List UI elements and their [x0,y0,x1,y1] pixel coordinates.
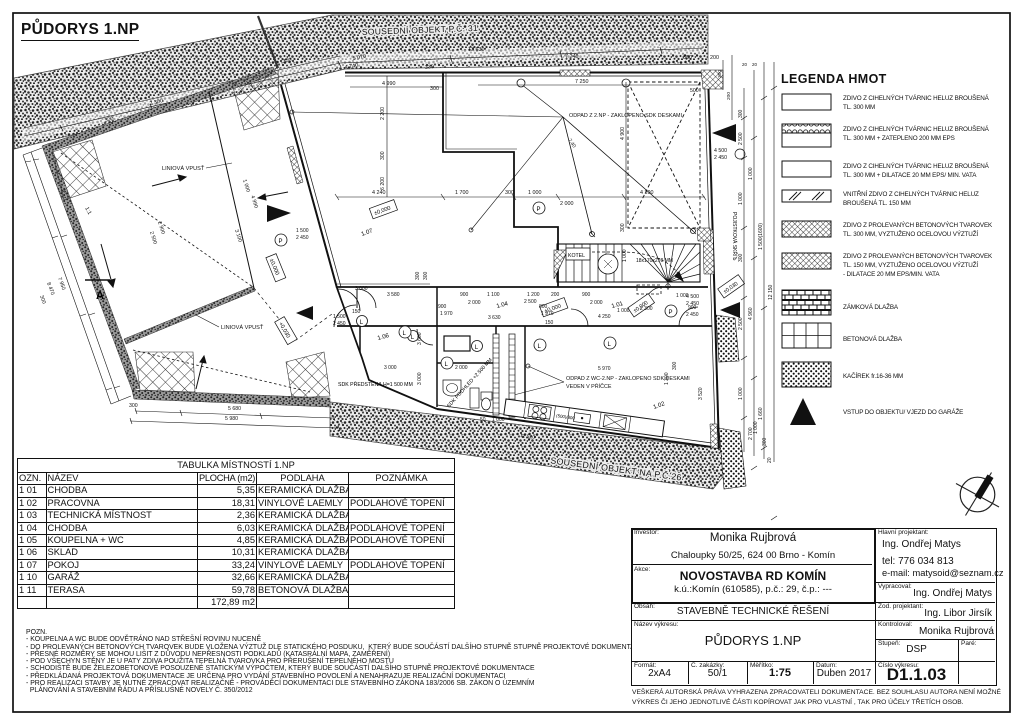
svg-text:SDK PŘEDSTĚNA H=1 500 MM: SDK PŘEDSTĚNA H=1 500 MM [338,380,413,388]
svg-text:4 240: 4 240 [372,190,386,196]
svg-text:ODPAD Z WC-2.NP - ZAKLOPENO SD: ODPAD Z WC-2.NP - ZAKLOPENO SDK DESKAMI [566,376,690,382]
svg-text:330: 330 [425,64,435,71]
svg-text:TL. 300 MM: TL. 300 MM [843,104,875,111]
svg-text:ZDIVO Z PROLEVANÝCH BETONOVÝCH: ZDIVO Z PROLEVANÝCH BETONOVÝCH TVAROVEK [843,220,993,229]
svg-text:1 300: 1 300 [664,372,670,385]
svg-text:200: 200 [551,292,560,298]
svg-text:TL. 300 MM + ZATEPLENO 200 MM: TL. 300 MM + ZATEPLENO 200 MM EPS [843,135,955,142]
svg-text:18x170x270 MM: 18x170x270 MM [636,258,673,264]
svg-text:2 000: 2 000 [590,300,603,306]
svg-text:1:1: 1:1 [83,206,92,216]
svg-text:5 680: 5 680 [228,406,241,412]
svg-text:2 500: 2 500 [148,231,158,245]
svg-text:1 000: 1 000 [738,387,744,400]
svg-text:4 740: 4 740 [344,63,358,71]
svg-text:300: 300 [423,271,429,280]
svg-text:2 300: 2 300 [640,306,653,312]
svg-text:TL. 300 MM + DILATACE 20 MM EP: TL. 300 MM + DILATACE 20 MM EPS/ MIN. VA… [843,172,977,179]
svg-text:900: 900 [460,292,469,298]
svg-text:6 200: 6 200 [380,177,386,190]
svg-text:3 600: 3 600 [417,332,423,345]
svg-text:300: 300 [738,253,744,262]
svg-text:5 970: 5 970 [598,366,611,372]
svg-text:7 950: 7 950 [56,277,66,291]
svg-text:5 980: 5 980 [225,416,238,422]
svg-text:4 500: 4 500 [686,294,699,300]
svg-text:VNITŘNÍ ZDIVO Z CIHELNÝCH TVÁR: VNITŘNÍ ZDIVO Z CIHELNÝCH TVÁRNIC HELUZ [843,189,979,198]
svg-text:1 200: 1 200 [527,292,540,298]
svg-text:1 700: 1 700 [455,190,469,196]
svg-text:12 150: 12 150 [768,284,774,300]
svg-text:1.07: 1.07 [361,228,375,238]
svg-text:LINIOVÁ VPUSŤ: LINIOVÁ VPUSŤ [162,164,205,172]
svg-text:300: 300 [672,361,678,370]
svg-text:3 000: 3 000 [417,372,423,385]
svg-text:2 450: 2 450 [714,155,727,161]
svg-text:ZÁMKOVÁ DLAŽBA: ZÁMKOVÁ DLAŽBA [843,302,899,311]
svg-text:A: A [96,290,104,302]
svg-text:2 900: 2 900 [156,221,166,235]
svg-text:2 450: 2 450 [296,235,309,241]
svg-text:1 000: 1 000 [748,167,754,180]
svg-text:1.06: 1.06 [377,333,390,342]
svg-text:300: 300 [717,70,723,78]
svg-text:1 100: 1 100 [487,292,500,298]
svg-text:900: 900 [438,304,447,310]
svg-text:300: 300 [38,295,47,305]
svg-text:LINIOVÁ VPUSŤ: LINIOVÁ VPUSŤ [221,323,264,331]
svg-text:2 450: 2 450 [686,312,699,318]
svg-text:300: 300 [762,437,768,446]
svg-text:ZDIVO Z CIHELNÝCH TVÁRNIC HELU: ZDIVO Z CIHELNÝCH TVÁRNIC HELUZ BROUŠENÁ [843,161,990,170]
svg-text:1 000: 1 000 [738,192,744,205]
svg-text:150: 150 [545,320,554,326]
svg-text:2 450: 2 450 [686,301,699,307]
svg-text:300: 300 [430,86,439,92]
svg-text:ZDIVO Z CIHELNÝCH TVÁRNIC HELU: ZDIVO Z CIHELNÝCH TVÁRNIC HELUZ BROUŠENÁ [843,93,990,102]
svg-text:300: 300 [620,223,626,232]
svg-text:1 000: 1 000 [753,421,759,434]
svg-text:7,40: 7,40 [566,138,577,150]
svg-text:3 000: 3 000 [355,286,368,292]
svg-text:ZDIVO Z CIHELNÝCH TVÁRNIC HELU: ZDIVO Z CIHELNÝCH TVÁRNIC HELUZ BROUŠENÁ [843,124,990,133]
svg-text:3 520: 3 520 [698,387,704,400]
svg-text:200: 200 [710,55,719,61]
svg-text:1 000: 1 000 [492,417,505,423]
svg-text:KOTEL: KOTEL [568,253,585,259]
svg-text:BROUŠENÁ TL. 150 MM: BROUŠENÁ TL. 150 MM [843,198,911,207]
svg-text:3 580: 3 580 [387,292,400,298]
svg-text:BETONOVÁ DLAŽBA: BETONOVÁ DLAŽBA [843,334,903,343]
svg-text:150: 150 [352,309,361,315]
svg-text:7 250: 7 250 [575,79,589,85]
svg-text:900: 900 [582,292,591,298]
svg-text:LEGENDA HMOT: LEGENDA HMOT [781,72,887,86]
svg-text:2 000: 2 000 [560,201,574,207]
svg-text:13 630: 13 630 [468,47,485,53]
svg-text:300: 300 [683,55,692,61]
svg-text:POJISTKOVÁ SKŘÍЪ: POJISTKOVÁ SKŘÍЪ [731,212,739,260]
svg-text:TL. 300 MM, VYZTUŽENO OCELOVOU: TL. 300 MM, VYZTUŽENO OCELOVOU VÝZTUŽÍ [843,229,978,238]
svg-text:1 500(1600): 1 500(1600) [758,223,764,250]
svg-text:- DILATACE 20 MM EPS/MIN. VATA: - DILATACE 20 MM EPS/MIN. VATA [843,271,940,278]
svg-text:1 000: 1 000 [528,190,542,196]
svg-text:3 000: 3 000 [384,365,397,371]
svg-text:P: P [279,239,283,245]
svg-text:2 500: 2 500 [738,317,744,330]
svg-text:20: 20 [742,62,748,67]
svg-text:P: P [537,207,541,213]
svg-text:2 200: 2 200 [380,107,386,120]
svg-text:ODPAD Z 2.NP - ZAKLOPENO SDK D: ODPAD Z 2.NP - ZAKLOPENO SDK DESKAMI [569,113,682,119]
svg-text:500: 500 [690,88,699,94]
svg-text:ZDIVO Z PROLEVANÝCH BETONOVÝCH: ZDIVO Z PROLEVANÝCH BETONOVÝCH TVAROVEK [843,251,993,260]
svg-text:KAČÍREK fr.16-36 MM: KAČÍREK fr.16-36 MM [843,371,903,380]
svg-text:1.04: 1.04 [496,301,509,310]
svg-text:VSTUP DO OBJEKTU/ VJEZD DO GAR: VSTUP DO OBJEKTU/ VJEZD DO GARÁŽE [843,407,963,416]
svg-text:P: P [669,310,673,316]
svg-text:4 900: 4 900 [620,127,626,140]
svg-text:1 000: 1 000 [241,179,251,193]
svg-text:20: 20 [752,62,758,67]
svg-text:50: 50 [480,417,486,423]
svg-text:4 390: 4 390 [640,190,654,196]
svg-text:7 240: 7 240 [565,54,579,60]
svg-text:1 660: 1 660 [758,407,764,420]
svg-text:1 000: 1 000 [622,249,628,262]
svg-text:2 000: 2 000 [468,300,481,306]
svg-text:2 500: 2 500 [738,132,744,145]
svg-text:TL. 150 MM, VYZTUŽENO OCELOVOU: TL. 150 MM, VYZTUŽENO OCELOVOU VÝZTUŽÍ [843,260,978,269]
svg-text:20: 20 [767,457,773,463]
svg-text:300: 300 [415,271,421,280]
svg-text:300: 300 [380,151,386,160]
svg-text:300: 300 [738,109,744,118]
svg-text:3 630: 3 630 [488,315,501,321]
svg-text:1 500: 1 500 [333,314,346,320]
svg-text:4 960: 4 960 [748,307,754,320]
svg-text:2 450: 2 450 [333,321,346,327]
svg-text:200: 200 [726,92,732,100]
svg-text:VEDEN V PŘÍČCE: VEDEN V PŘÍČCE [566,382,612,390]
svg-text:1 970: 1 970 [541,311,554,317]
svg-text:4 990: 4 990 [249,195,259,209]
svg-text:1 000: 1 000 [617,308,630,314]
svg-text:1 970: 1 970 [440,311,453,317]
svg-text:4 500: 4 500 [714,148,727,154]
svg-text:300: 300 [505,190,514,196]
svg-text:1.02: 1.02 [653,401,667,411]
svg-text:1 500: 1 500 [296,228,309,234]
svg-text:8 470: 8 470 [45,282,55,296]
svg-text:4 250: 4 250 [598,314,611,320]
svg-text:2 500: 2 500 [524,299,537,305]
svg-text:300: 300 [129,403,138,409]
svg-text:800: 800 [539,304,548,310]
svg-text:4 990: 4 990 [382,81,396,87]
svg-text:2 000: 2 000 [455,365,468,371]
